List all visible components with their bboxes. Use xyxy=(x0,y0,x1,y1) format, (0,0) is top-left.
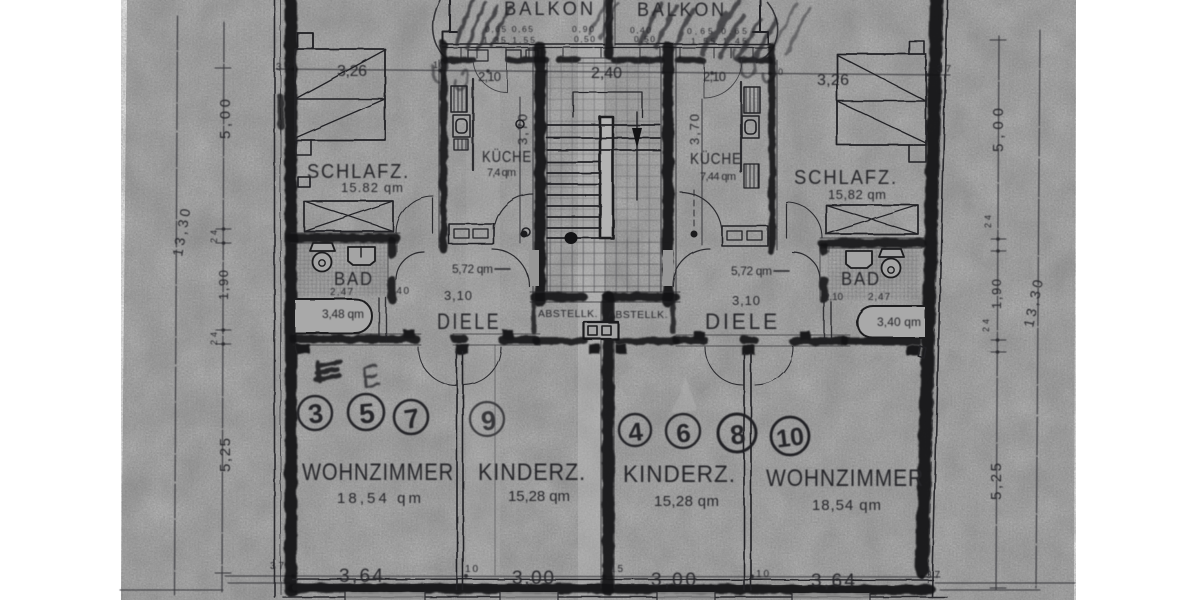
svg-text:3,64: 3,64 xyxy=(811,571,855,592)
svg-text:10: 10 xyxy=(775,422,806,453)
svg-text:3,26: 3,26 xyxy=(817,72,849,89)
svg-text:3,70: 3,70 xyxy=(687,114,702,145)
svg-text:3,70: 3,70 xyxy=(515,114,530,145)
svg-text:3,00: 3,00 xyxy=(512,568,554,589)
svg-text:3,40 qm: 3,40 qm xyxy=(877,315,921,329)
svg-text:.40: .40 xyxy=(392,286,409,297)
svg-text:KINDERZ.: KINDERZ. xyxy=(623,461,736,488)
svg-text:7,44 qm: 7,44 qm xyxy=(700,171,736,183)
svg-text:1,90: 1,90 xyxy=(216,270,231,300)
svg-text:0,65 0,65: 0,65 0,65 xyxy=(485,24,533,34)
svg-text:2,10: 2,10 xyxy=(824,292,843,303)
svg-text:BALKON: BALKON xyxy=(637,0,727,21)
svg-text:BAD: BAD xyxy=(841,269,881,289)
svg-text:DIELE: DIELE xyxy=(705,309,780,334)
svg-text:15: 15 xyxy=(610,564,623,575)
svg-text:1,90: 1,90 xyxy=(989,279,1004,309)
svg-text:WOHNZIMMER: WOHNZIMMER xyxy=(302,459,454,486)
svg-text:3,48 qm: 3,48 qm xyxy=(322,307,364,321)
svg-text:KÜCHE: KÜCHE xyxy=(690,150,742,168)
svg-text:WOHNZIMMER: WOHNZIMMER xyxy=(766,465,924,492)
svg-text:0,50: 0,50 xyxy=(634,34,655,44)
svg-text:BAD: BAD xyxy=(334,269,374,289)
svg-text:ABSTELLK.: ABSTELLK. xyxy=(538,309,598,320)
svg-text:5,00: 5,00 xyxy=(990,108,1007,152)
svg-text:18,54 qm: 18,54 qm xyxy=(337,490,421,507)
svg-text:5,00: 5,00 xyxy=(217,99,234,139)
svg-text:2,47: 2,47 xyxy=(330,287,353,298)
svg-text:KINDERZ.: KINDERZ. xyxy=(478,459,586,486)
svg-text:2,40: 2,40 xyxy=(591,65,622,82)
svg-text:10: 10 xyxy=(772,67,783,77)
svg-text:10: 10 xyxy=(433,60,444,70)
svg-text:10: 10 xyxy=(465,564,478,575)
svg-text:15,28 qm: 15,28 qm xyxy=(654,493,719,510)
svg-text:ABSTELLK.: ABSTELLK. xyxy=(608,310,668,321)
svg-text:2,10: 2,10 xyxy=(703,69,726,84)
svg-text:3,26: 3,26 xyxy=(337,63,367,80)
svg-text:2,10: 2,10 xyxy=(478,69,501,84)
svg-text:5: 5 xyxy=(358,397,376,429)
svg-text:7,4 qm: 7,4 qm xyxy=(487,167,516,179)
svg-text:5,25: 5,25 xyxy=(988,463,1005,500)
svg-text:0,90: 0,90 xyxy=(572,24,594,34)
svg-text:3,10: 3,10 xyxy=(732,293,760,308)
svg-text:1,35 1,55: 1,35 1,55 xyxy=(483,35,535,45)
svg-text:10: 10 xyxy=(756,569,769,580)
svg-text:18,54 qm: 18,54 qm xyxy=(812,497,881,514)
svg-text:0,50: 0,50 xyxy=(574,34,595,44)
svg-text:1,55 1,45: 1,55 1,45 xyxy=(691,36,747,46)
svg-text:5,72 qm: 5,72 qm xyxy=(452,262,493,276)
svg-text:5,72 qm: 5,72 qm xyxy=(731,264,772,278)
svg-text:15,28 qm: 15,28 qm xyxy=(508,488,570,505)
svg-text:0,65 0,65: 0,65 0,65 xyxy=(687,26,747,36)
svg-text:KÜCHE: KÜCHE xyxy=(482,148,532,166)
svg-text:3,00: 3,00 xyxy=(651,570,696,591)
svg-text:2,47: 2,47 xyxy=(868,292,890,303)
svg-text:3,64: 3,64 xyxy=(339,566,383,587)
svg-text:3: 3 xyxy=(307,398,325,429)
svg-text:3,10: 3,10 xyxy=(444,288,472,303)
svg-text:SCHLAFZ.: SCHLAFZ. xyxy=(794,167,898,189)
svg-text:6: 6 xyxy=(675,417,692,448)
svg-text:15,82 qm: 15,82 qm xyxy=(828,187,886,202)
svg-text:BALKON: BALKON xyxy=(504,0,596,20)
svg-text:15.82 qm: 15.82 qm xyxy=(341,180,403,195)
svg-text:DIELE: DIELE xyxy=(437,309,501,334)
svg-text:5,25: 5,25 xyxy=(217,438,234,472)
